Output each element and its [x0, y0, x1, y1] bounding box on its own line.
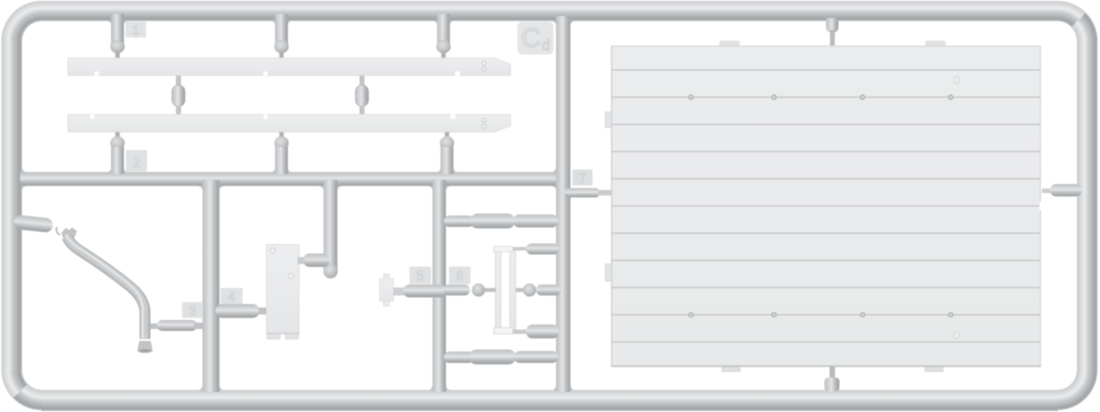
svg-text:3: 3: [189, 303, 196, 318]
svg-text:6: 6: [456, 268, 464, 284]
svg-text:4: 4: [228, 289, 235, 304]
svg-text:2: 2: [133, 154, 141, 170]
svg-text:1: 1: [132, 23, 139, 38]
svg-text:C: C: [521, 23, 541, 53]
svg-text:5: 5: [416, 268, 424, 284]
svg-text:d: d: [542, 37, 550, 54]
svg-text:7: 7: [579, 171, 586, 186]
